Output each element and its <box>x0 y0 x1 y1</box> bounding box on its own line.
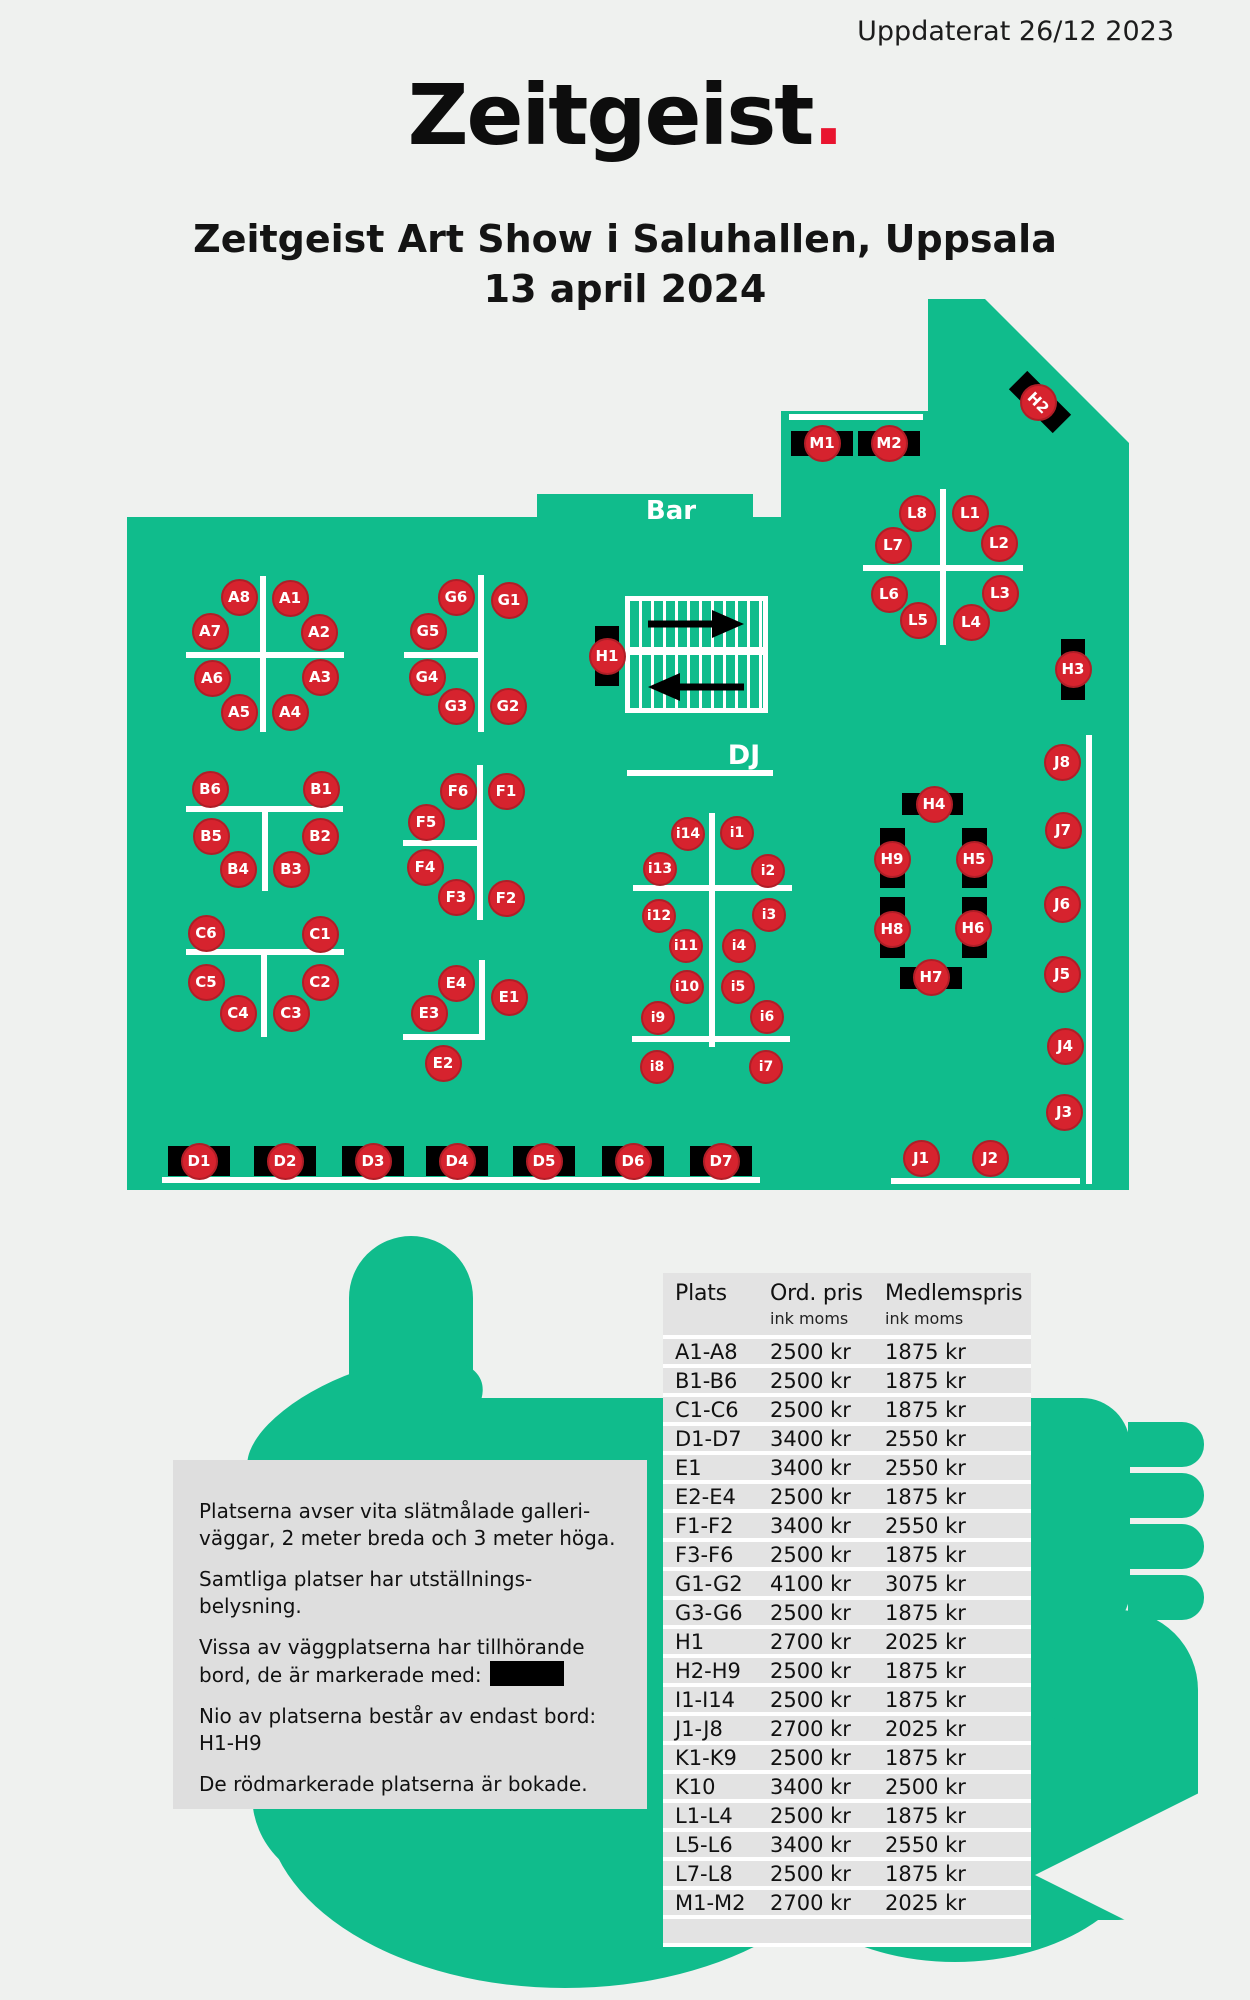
wall-segment <box>404 652 481 658</box>
wall-segment <box>709 813 715 1047</box>
price-row-A1-A8: A1-A82500 kr1875 kr <box>663 1339 1031 1364</box>
price-row-H1: H12700 kr2025 kr <box>663 1629 1031 1654</box>
seat-marker-i2: i2 <box>751 854 785 888</box>
finger-shape <box>1128 1422 1204 1467</box>
seat-marker-C6: C6 <box>188 915 225 952</box>
price-row-M1-M2: M1-M22700 kr2025 kr <box>663 1890 1031 1915</box>
price-table-header: Plats Ord. prisink moms Medlemsprisink m… <box>663 1273 1031 1335</box>
seat-marker-A8: A8 <box>221 579 258 616</box>
wall-segment <box>863 565 1023 571</box>
wall-segment <box>1086 735 1092 1184</box>
seat-marker-D3: D3 <box>355 1143 392 1180</box>
seat-marker-D1: D1 <box>181 1143 218 1180</box>
seat-marker-J7: J7 <box>1045 812 1082 849</box>
seat-marker-B6: B6 <box>192 771 229 808</box>
price-table-footer <box>663 1919 1031 1943</box>
seat-marker-F3: F3 <box>438 879 475 916</box>
wall-segment <box>186 652 344 658</box>
price-rows: A1-A82500 kr1875 krB1-B62500 kr1875 krC1… <box>663 1339 1031 1943</box>
seat-marker-i9: i9 <box>641 1001 675 1035</box>
col-medlemspris: Medlemspris <box>885 1281 1031 1306</box>
seat-marker-H1: H1 <box>589 638 626 675</box>
wall-segment <box>403 840 480 846</box>
stairs <box>625 596 768 713</box>
seat-marker-H8: H8 <box>874 911 911 948</box>
seat-marker-G4: G4 <box>409 659 446 696</box>
seat-marker-L3: L3 <box>982 575 1019 612</box>
seat-marker-H6: H6 <box>955 910 992 947</box>
seat-marker-F4: F4 <box>407 849 444 886</box>
seat-marker-E4: E4 <box>438 965 475 1002</box>
legend-walls-text: Platserna avser vita slätmålade galleri-… <box>199 1498 621 1552</box>
seat-marker-F1: F1 <box>488 773 525 810</box>
seat-marker-A5: A5 <box>221 694 258 731</box>
wall-segment <box>891 1178 1080 1184</box>
price-row-C1-C6: C1-C62500 kr1875 kr <box>663 1397 1031 1422</box>
seat-marker-i13: i13 <box>643 852 677 886</box>
seat-marker-A4: A4 <box>272 694 309 731</box>
seat-marker-A2: A2 <box>301 614 338 651</box>
finger-shape <box>1128 1473 1204 1518</box>
wall-segment <box>632 1036 790 1042</box>
stairs-up-arrow-icon <box>646 608 746 640</box>
seat-marker-E3: E3 <box>411 995 448 1032</box>
seat-marker-L6: L6 <box>871 576 908 613</box>
seat-marker-A6: A6 <box>194 660 231 697</box>
finger-shape <box>1128 1524 1204 1569</box>
seat-marker-A3: A3 <box>302 659 339 696</box>
legend-bord-text: Nio av platserna består av endast bord: … <box>199 1703 621 1757</box>
legend-table-text: Vissa av väggplatserna har tillhörande b… <box>199 1634 621 1689</box>
seat-marker-F2: F2 <box>488 880 525 917</box>
seat-marker-i4: i4 <box>722 929 756 963</box>
price-row-J1-J8: J1-J82700 kr2025 kr <box>663 1716 1031 1741</box>
seat-marker-i5: i5 <box>721 970 755 1004</box>
seat-marker-F6: F6 <box>440 773 477 810</box>
price-table: Plats Ord. prisink moms Medlemsprisink m… <box>663 1273 1031 1947</box>
seat-marker-H4: H4 <box>916 786 953 823</box>
seat-marker-C3: C3 <box>273 995 310 1032</box>
seat-marker-J4: J4 <box>1047 1028 1084 1065</box>
seat-marker-F5: F5 <box>408 804 445 841</box>
legend-lighting-text: Samtliga platser har utställnings- belys… <box>199 1566 621 1620</box>
seat-marker-G5: G5 <box>410 613 447 650</box>
seat-marker-L5: L5 <box>900 602 937 639</box>
seat-marker-G3: G3 <box>438 688 475 725</box>
price-row-B1-B6: B1-B62500 kr1875 kr <box>663 1368 1031 1393</box>
seat-marker-J1: J1 <box>903 1140 940 1177</box>
col-ord-sub: ink moms <box>770 1309 885 1328</box>
seat-marker-J5: J5 <box>1044 956 1081 993</box>
seat-marker-A7: A7 <box>192 613 229 650</box>
price-row-F1-F2: F1-F23400 kr2550 kr <box>663 1513 1031 1538</box>
price-row-H2-H9: H2-H92500 kr1875 kr <box>663 1658 1031 1683</box>
floor-plan: Bar DJ A8A1A7A2A6A3A5A4G6G1G5G4G3G2B6B1B… <box>0 0 1250 1250</box>
seat-marker-i1: i1 <box>720 816 754 850</box>
seat-marker-G1: G1 <box>491 582 528 619</box>
price-row-G3-G6: G3-G62500 kr1875 kr <box>663 1600 1031 1625</box>
seat-marker-A1: A1 <box>272 580 309 617</box>
col-medlem-sub: ink moms <box>885 1309 1031 1328</box>
seat-marker-B4: B4 <box>220 851 257 888</box>
seat-marker-i14: i14 <box>671 817 705 851</box>
col-plats: Plats <box>675 1281 770 1306</box>
seat-marker-i10: i10 <box>670 970 704 1004</box>
seat-marker-H9: H9 <box>874 841 911 878</box>
seat-marker-H5: H5 <box>956 841 993 878</box>
legend-booked-text: De rödmarkerade platserna är bokade. <box>199 1771 621 1798</box>
seat-marker-i12: i12 <box>642 899 676 933</box>
col-ord-pris: Ord. pris <box>770 1281 885 1306</box>
seat-marker-C4: C4 <box>220 995 257 1032</box>
seat-marker-i7: i7 <box>749 1050 783 1084</box>
seat-marker-H3: H3 <box>1055 651 1092 688</box>
wall-segment <box>789 414 923 420</box>
seat-marker-D4: D4 <box>439 1143 476 1180</box>
seat-marker-D6: D6 <box>615 1143 652 1180</box>
seat-marker-M1: M1 <box>804 425 841 462</box>
price-row-I1-I14: I1-I142500 kr1875 kr <box>663 1687 1031 1712</box>
price-row-E2-E4: E2-E42500 kr1875 kr <box>663 1484 1031 1509</box>
price-row-G1-G2: G1-G24100 kr3075 kr <box>663 1571 1031 1596</box>
seat-marker-E2: E2 <box>425 1045 462 1082</box>
seat-marker-M2: M2 <box>871 425 908 462</box>
seat-marker-J3: J3 <box>1046 1094 1083 1131</box>
seat-marker-i11: i11 <box>669 929 703 963</box>
seat-marker-C5: C5 <box>188 964 225 1001</box>
wall-segment <box>262 809 268 891</box>
seat-marker-L1: L1 <box>952 495 989 532</box>
seat-marker-D7: D7 <box>703 1143 740 1180</box>
price-row-L1-L4: L1-L42500 kr1875 kr <box>663 1803 1031 1828</box>
seat-marker-i6: i6 <box>750 1000 784 1034</box>
seat-marker-B3: B3 <box>273 851 310 888</box>
bar-label: Bar <box>631 496 711 526</box>
seat-marker-C2: C2 <box>302 964 339 1001</box>
seat-marker-J6: J6 <box>1044 886 1081 923</box>
seat-marker-D5: D5 <box>526 1143 563 1180</box>
seat-marker-G6: G6 <box>438 579 475 616</box>
legend-panel: Platserna avser vita slätmålade galleri-… <box>173 1460 647 1809</box>
seat-marker-L2: L2 <box>981 525 1018 562</box>
price-row-K1-K9: K1-K92500 kr1875 kr <box>663 1745 1031 1770</box>
price-row-K10: K103400 kr2500 kr <box>663 1774 1031 1799</box>
seat-marker-B2: B2 <box>302 818 339 855</box>
seat-marker-i3: i3 <box>752 898 786 932</box>
seat-marker-L8: L8 <box>899 495 936 532</box>
poster-page: Uppdaterat 26/12 2023 Zeitgeist. Zeitgei… <box>0 0 1250 2000</box>
seat-marker-L4: L4 <box>953 604 990 641</box>
table-marker-chip <box>490 1661 564 1686</box>
seat-marker-J2: J2 <box>972 1140 1009 1177</box>
seat-marker-H7: H7 <box>913 959 950 996</box>
seat-marker-B5: B5 <box>193 818 230 855</box>
dj-label: DJ <box>704 740 784 771</box>
price-row-L7-L8: L7-L82500 kr1875 kr <box>663 1861 1031 1886</box>
wall-segment <box>627 770 773 776</box>
price-row-D1-D7: D1-D73400 kr2550 kr <box>663 1426 1031 1451</box>
seat-marker-D2: D2 <box>267 1143 304 1180</box>
seat-marker-i8: i8 <box>640 1050 674 1084</box>
seat-marker-B1: B1 <box>303 771 340 808</box>
seat-marker-C1: C1 <box>302 916 339 953</box>
seat-marker-E1: E1 <box>491 979 528 1016</box>
price-row-F3-F6: F3-F62500 kr1875 kr <box>663 1542 1031 1567</box>
wall-segment <box>403 1034 485 1040</box>
price-row-E1: E13400 kr2550 kr <box>663 1455 1031 1480</box>
wall-segment <box>261 952 267 1037</box>
seat-marker-J8: J8 <box>1044 744 1081 781</box>
seat-marker-G2: G2 <box>490 688 527 725</box>
wall-segment <box>479 960 485 1040</box>
stairs-down-arrow-icon <box>646 671 746 703</box>
seat-marker-L7: L7 <box>875 527 912 564</box>
price-row-L5-L6: L5-L63400 kr2550 kr <box>663 1832 1031 1857</box>
